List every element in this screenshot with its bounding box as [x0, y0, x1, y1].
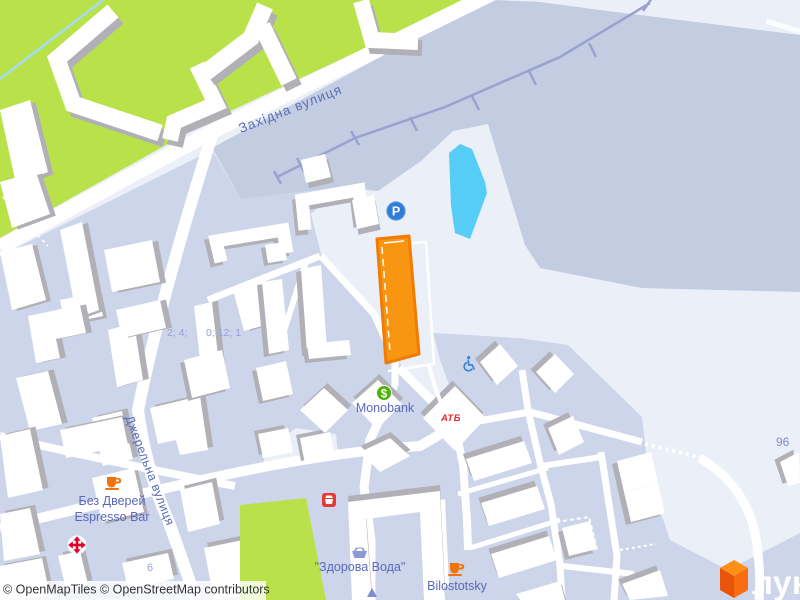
svg-text:Без Дверей: Без Дверей	[79, 494, 146, 508]
svg-text:"Здорова Вода": "Здорова Вода"	[315, 560, 406, 574]
svg-text:$: $	[381, 389, 388, 401]
svg-text:6: 6	[147, 562, 153, 574]
svg-text:2; 4;: 2; 4;	[167, 327, 187, 339]
svg-text:© OpenMapTiles © OpenStreetMap: © OpenMapTiles © OpenStreetMap contribut…	[3, 583, 270, 597]
svg-text:Bilostotsky: Bilostotsky	[427, 579, 487, 593]
svg-text:0; 12; 1: 0; 12; 1	[206, 327, 241, 339]
svg-text:Monobank: Monobank	[356, 401, 415, 415]
svg-text:лун: лун	[752, 564, 800, 600]
svg-text:96: 96	[776, 435, 790, 449]
svg-text:АТБ: АТБ	[440, 413, 461, 424]
svg-text:Espresso Bar: Espresso Bar	[74, 510, 149, 524]
svg-text:P: P	[392, 205, 400, 219]
